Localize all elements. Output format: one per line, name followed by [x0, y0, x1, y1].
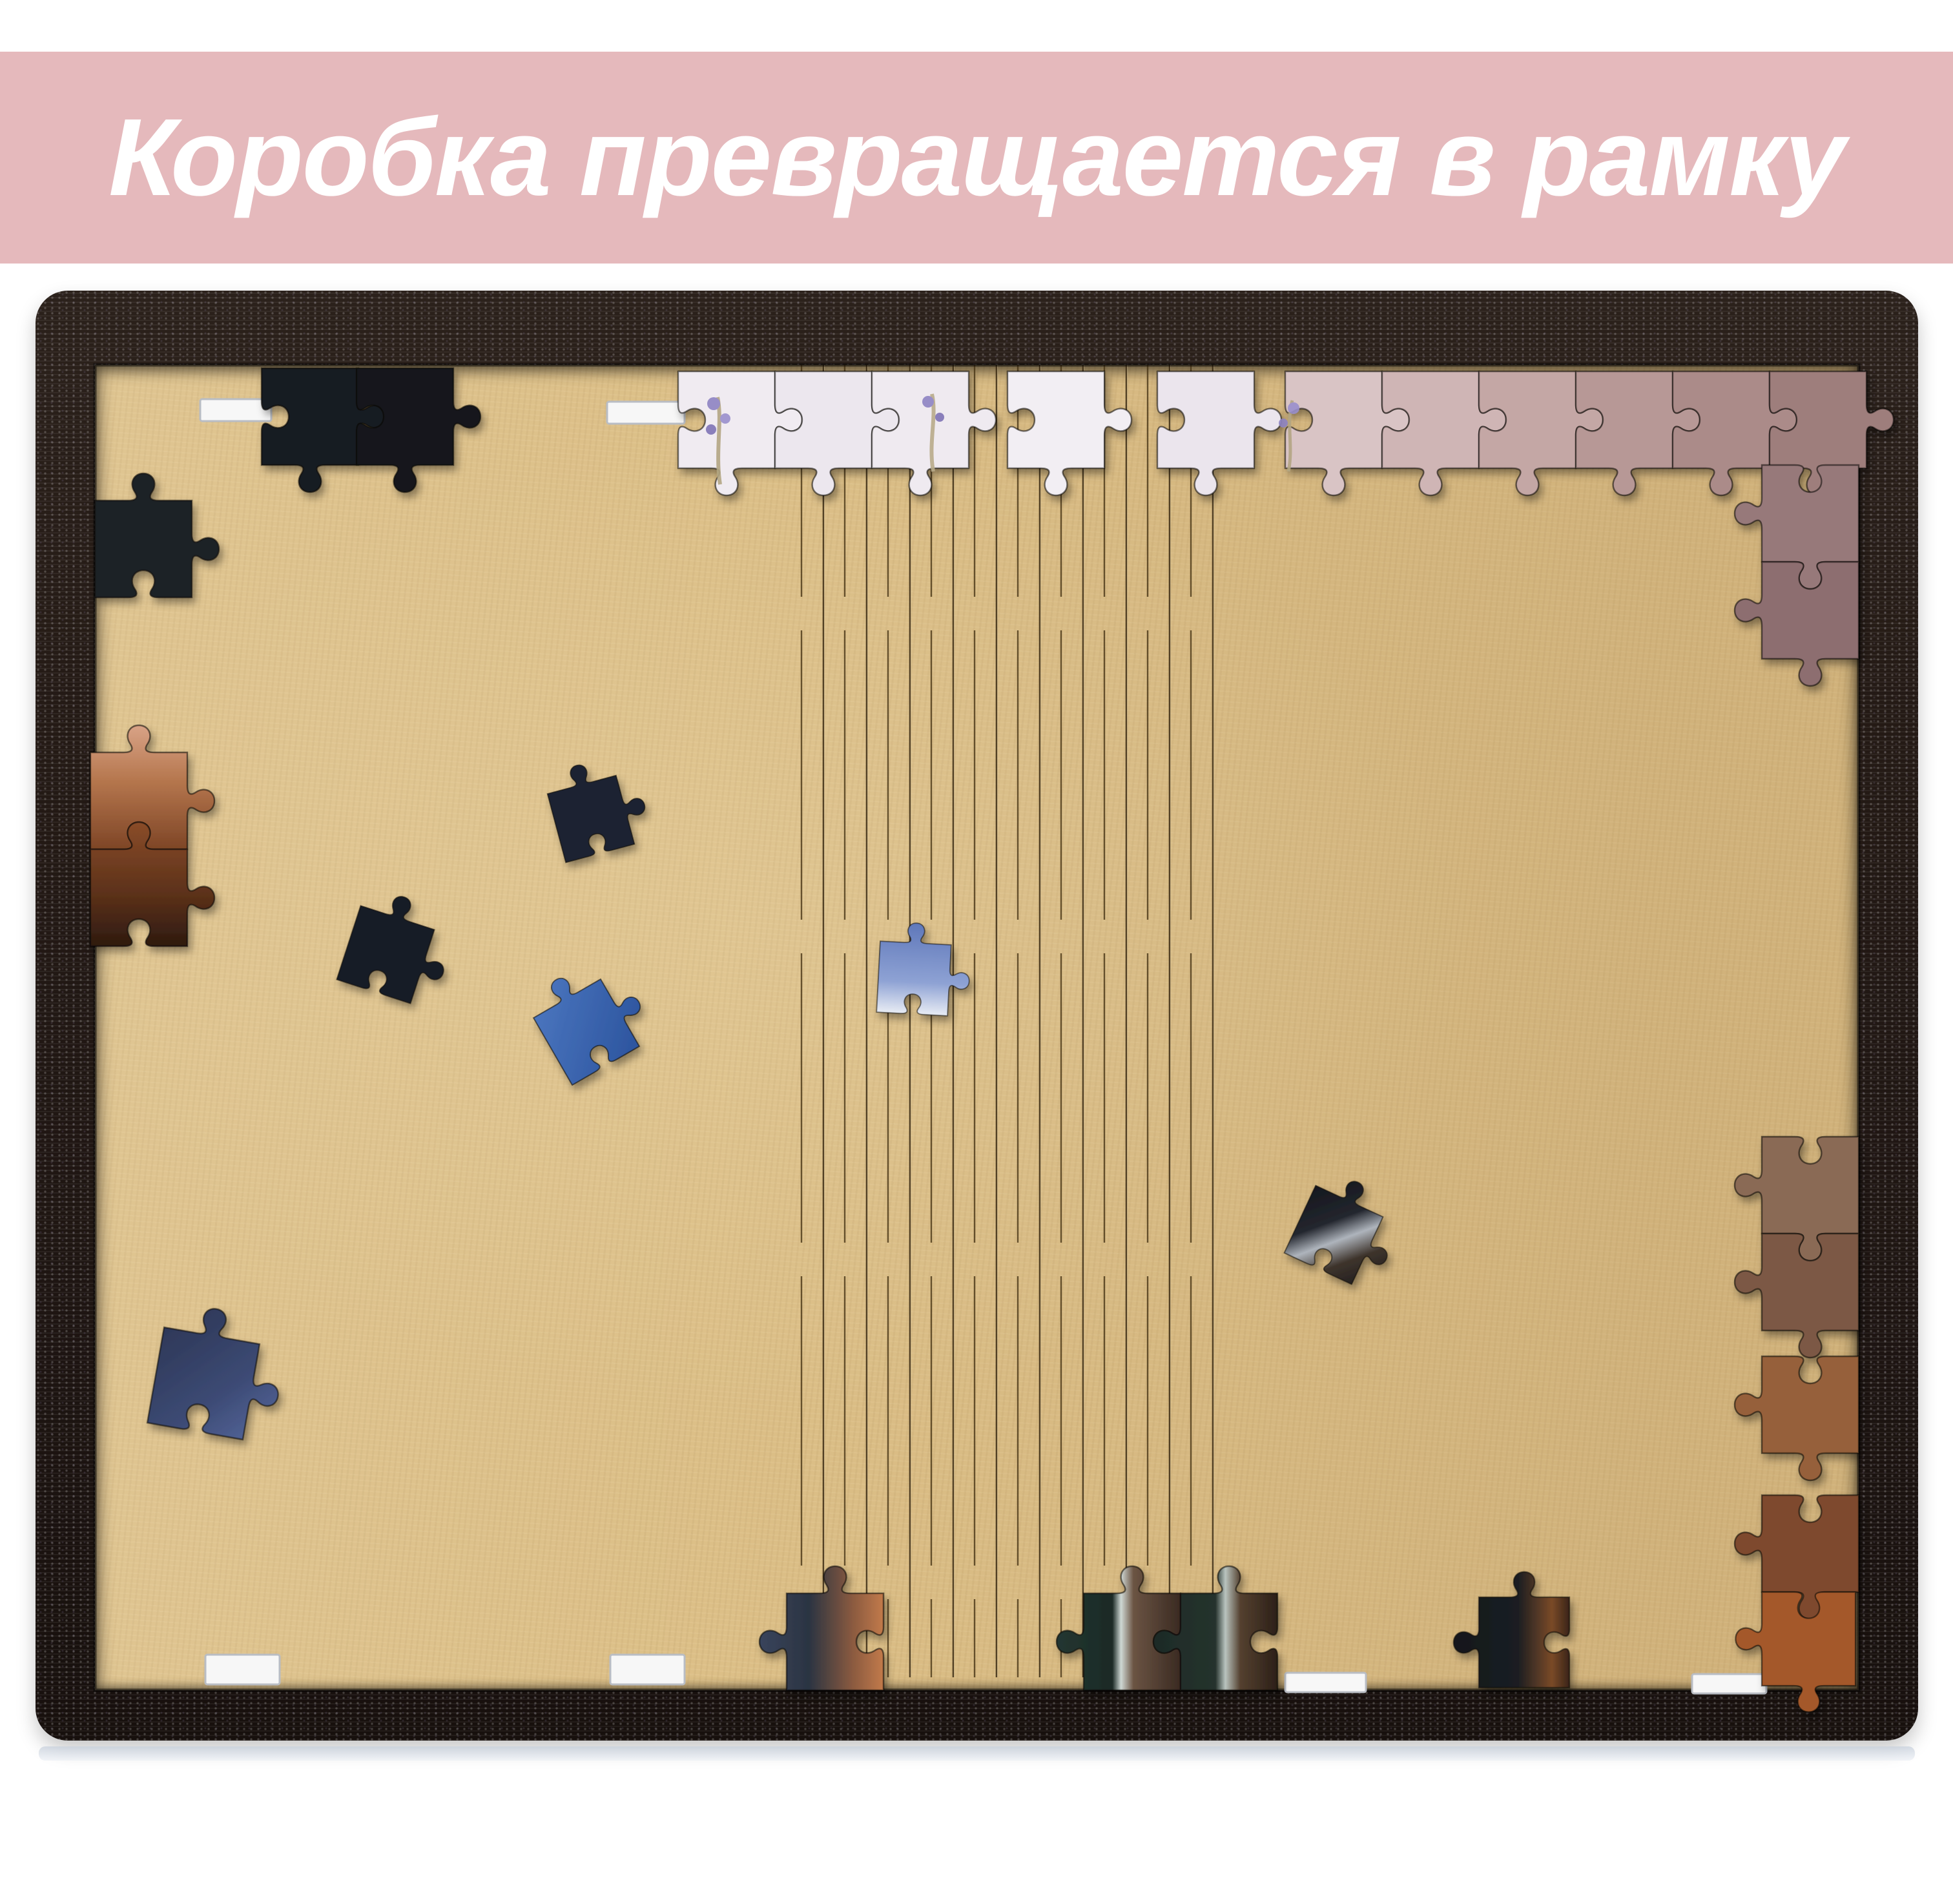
puzzle-piece: [1454, 1572, 1569, 1688]
puzzle-piece: [1285, 1166, 1411, 1293]
puzzle-piece: [90, 725, 214, 849]
board-overlay: [36, 291, 1918, 1741]
puzzle-piece: [542, 751, 654, 862]
puzzle-piece: [147, 1301, 291, 1444]
banner-text: Коробка превращается в рамку: [108, 94, 1844, 221]
slot-tab: [205, 1655, 280, 1684]
puzzle-piece: [1735, 1356, 1859, 1480]
product-photo: [0, 264, 1953, 1904]
puzzle-piece: [95, 473, 219, 597]
puzzle-piece: [1735, 1234, 1859, 1358]
slot-tab: [200, 399, 271, 421]
table-reflection: [39, 1746, 1915, 1761]
puzzle-piece: [1735, 562, 1859, 686]
living-hinge-cuts: [788, 365, 1221, 1677]
title-banner: Коробка превращается в рамку: [0, 52, 1953, 264]
puzzle-piece: [356, 368, 480, 492]
slot-tab: [607, 402, 685, 424]
puzzle-box-board: [36, 291, 1918, 1741]
puzzle-piece: [522, 949, 658, 1085]
puzzle-piece: [336, 885, 462, 1010]
slot-tab: [1692, 1674, 1766, 1693]
slot-tab: [1285, 1673, 1366, 1692]
slot-tab: [610, 1655, 685, 1684]
